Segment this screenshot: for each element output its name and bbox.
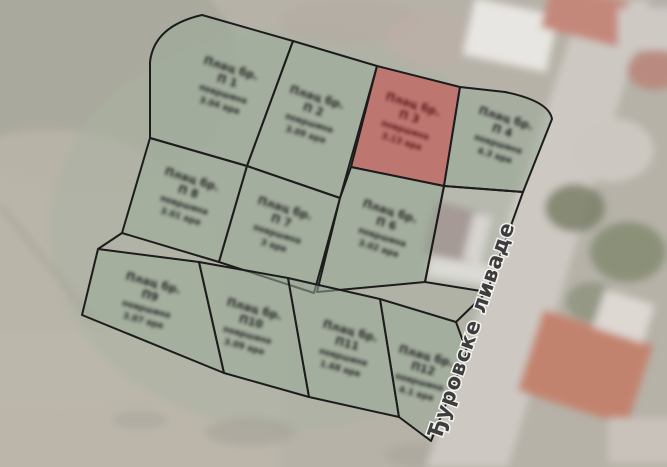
field-patch — [385, 12, 475, 68]
building-roof — [463, 0, 558, 72]
building-roof — [608, 418, 667, 463]
field-smudge — [205, 418, 295, 446]
tree-canopy — [590, 222, 666, 282]
building-roof — [570, 118, 654, 182]
tree-canopy — [545, 184, 605, 232]
house-roof — [627, 50, 667, 90]
building-roof — [618, 8, 667, 50]
satellite-map: Плац бр. П 1 површина 3.04 ара Плац бр. … — [0, 0, 667, 467]
field-smudge — [112, 410, 168, 430]
